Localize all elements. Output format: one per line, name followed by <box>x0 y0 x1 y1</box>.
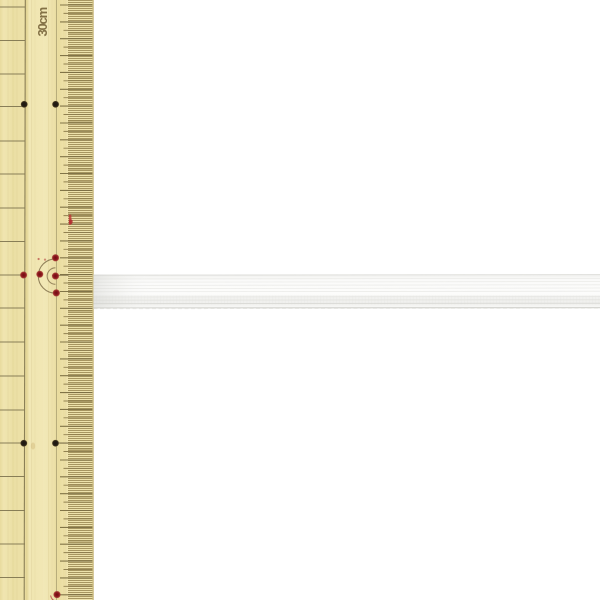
svg-text:30cm: 30cm <box>35 7 50 36</box>
